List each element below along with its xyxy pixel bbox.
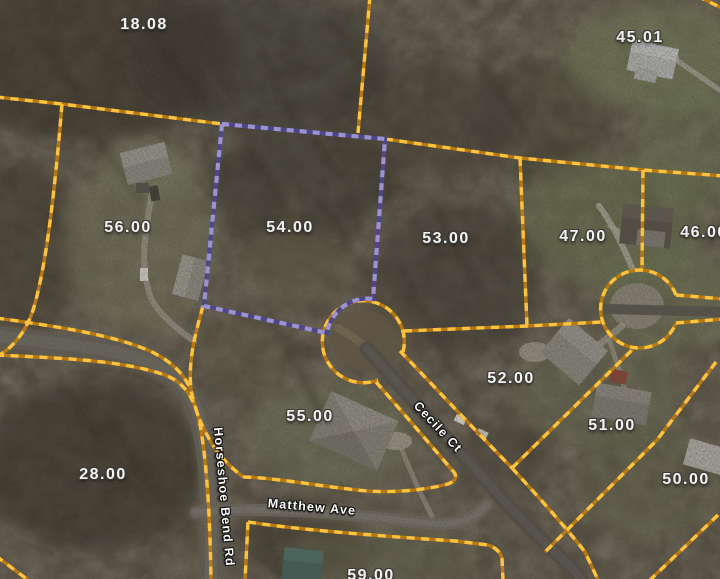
canopy-speckle	[0, 0, 720, 579]
aerial-imagery-layer	[0, 0, 720, 579]
map-viewport[interactable]: 18.08 45.01 56.00 54.00 53.00 47.00 46.0…	[0, 0, 720, 579]
